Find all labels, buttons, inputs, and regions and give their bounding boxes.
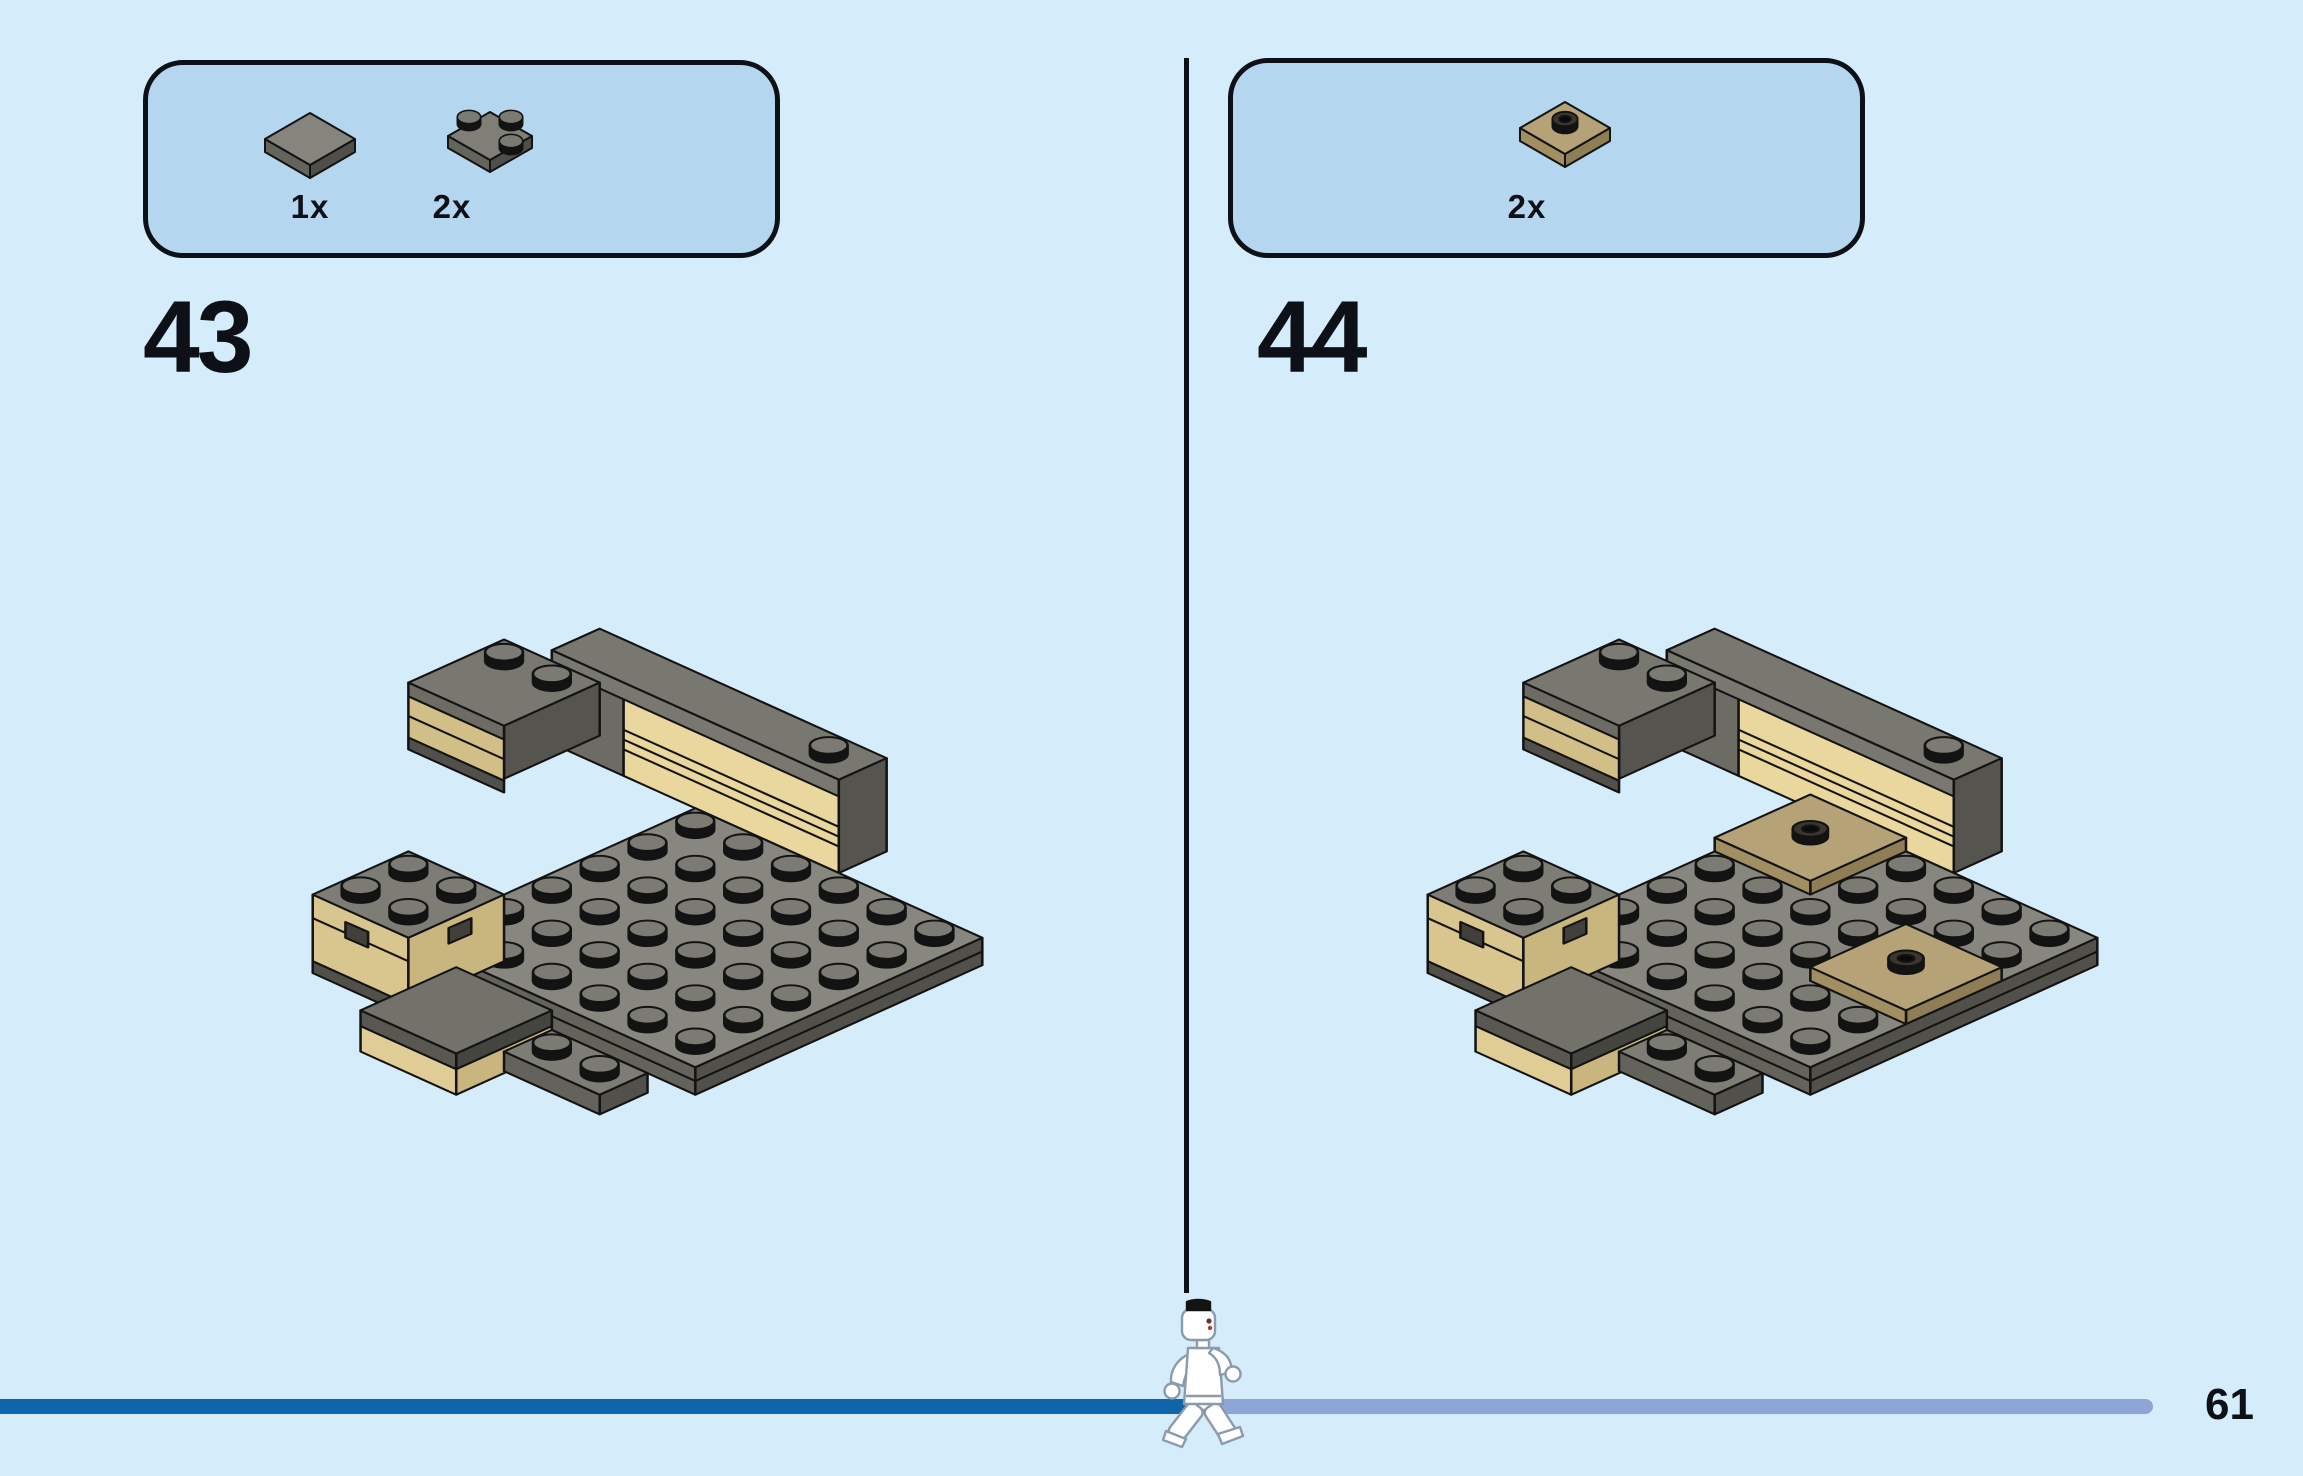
step-number-43: 43	[143, 286, 250, 388]
assembly-illustration-step-44	[1395, 612, 2125, 1132]
part-qty-label: 2x	[1482, 188, 1572, 226]
page-number: 61	[2205, 1380, 2254, 1430]
progress-bar-remaining	[1186, 1399, 2153, 1414]
part-qty-label: 2x	[407, 188, 497, 226]
walking-minifigure-icon	[1158, 1294, 1250, 1452]
column-divider-line	[1184, 58, 1189, 1293]
part-corner-plate-2x2-dark-gray-icon	[435, 98, 545, 198]
part-jumper-plate-2x2-tan-icon	[1505, 82, 1625, 187]
assembly-illustration-step-43	[280, 612, 1010, 1132]
step-number-44: 44	[1257, 286, 1364, 388]
part-tile-2x2-dark-gray-icon	[255, 95, 365, 195]
part-qty-label: 1x	[265, 188, 355, 226]
progress-bar-filled	[0, 1399, 1186, 1414]
